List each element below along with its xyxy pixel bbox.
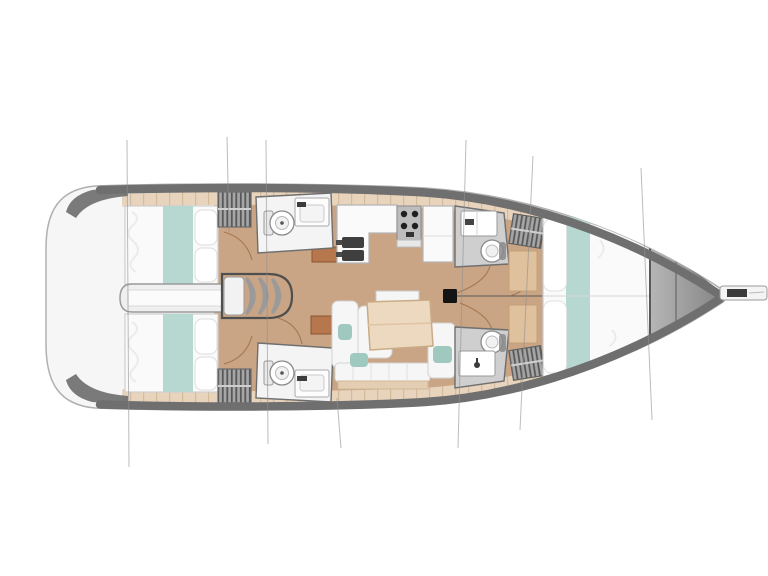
forward-dresser bbox=[509, 251, 537, 291]
forward-wardrobe-starboard bbox=[509, 346, 545, 381]
anchor-roller bbox=[727, 289, 747, 297]
forward-head-starboard bbox=[455, 327, 509, 388]
aft-wardrobe-port bbox=[218, 192, 251, 227]
stove-icon bbox=[397, 206, 421, 247]
settee-bench bbox=[335, 363, 430, 382]
settee-kick bbox=[338, 381, 428, 389]
sink-icon bbox=[295, 370, 329, 397]
forward-dresser bbox=[509, 305, 537, 343]
bed-runner-teal bbox=[163, 314, 193, 392]
pillow bbox=[195, 319, 217, 354]
boat-deck-plan bbox=[0, 0, 768, 576]
forward-wardrobe-port bbox=[509, 214, 545, 249]
aft-head-port bbox=[256, 193, 333, 253]
cushion-teal bbox=[338, 324, 352, 340]
pillow bbox=[195, 210, 217, 245]
pillow bbox=[195, 357, 217, 390]
galley-sink-basin bbox=[342, 237, 364, 248]
sink-icon bbox=[459, 351, 495, 376]
bowsprit bbox=[720, 286, 767, 300]
toilet-icon bbox=[264, 211, 294, 235]
aft-wardrobe-starboard bbox=[218, 369, 251, 404]
salon-table bbox=[367, 300, 433, 350]
pillow bbox=[195, 248, 217, 282]
faucet-icon bbox=[336, 240, 342, 245]
toilet-icon bbox=[481, 240, 506, 262]
toilet-icon bbox=[264, 361, 294, 385]
bed-runner-teal bbox=[163, 206, 193, 284]
sink-icon bbox=[461, 211, 497, 236]
cushion-teal bbox=[433, 346, 452, 363]
galley-counter-right bbox=[423, 206, 453, 262]
aft-cabin-starboard bbox=[125, 314, 218, 392]
companionway-stairs bbox=[222, 274, 292, 318]
stair-step bbox=[224, 277, 244, 315]
deck-plan-canvas bbox=[0, 0, 768, 576]
forward-cabin bbox=[543, 213, 650, 381]
aft-cabin-port bbox=[125, 206, 218, 284]
pillow bbox=[544, 219, 567, 291]
mast bbox=[443, 289, 457, 303]
sink-icon bbox=[295, 198, 329, 226]
toilet-icon bbox=[481, 331, 506, 353]
pillow bbox=[544, 301, 567, 373]
faucet-icon bbox=[336, 252, 342, 257]
cushion-teal bbox=[350, 353, 368, 367]
interior bbox=[120, 192, 722, 404]
galley-sink-basin bbox=[342, 250, 364, 261]
